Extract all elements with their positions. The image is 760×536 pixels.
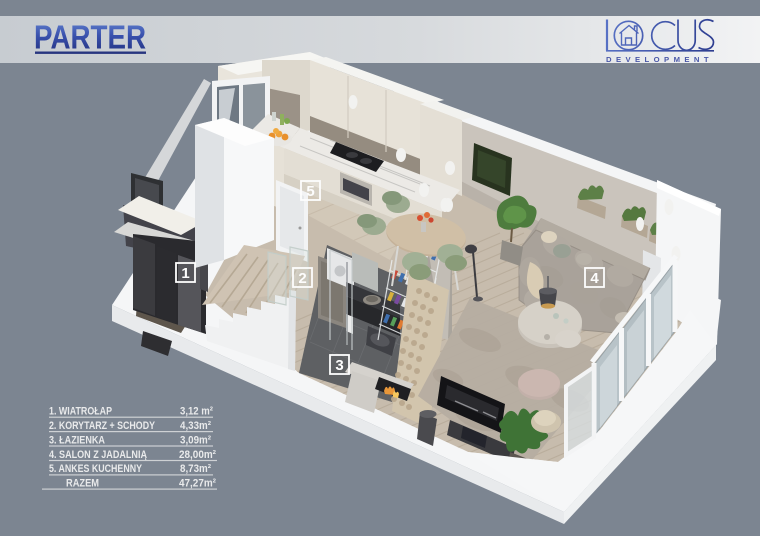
svg-text:DEVELOPMENT: DEVELOPMENT [606, 57, 713, 64]
svg-text:1: 1 [181, 265, 189, 282]
svg-text:3. ŁAZIENKA: 3. ŁAZIENKA [49, 434, 105, 446]
svg-text:4. SALON Z JADALNIĄ: 4. SALON Z JADALNIĄ [49, 449, 147, 461]
svg-text:4: 4 [590, 270, 599, 287]
svg-text:2. KORYTARZ + SCHODY: 2. KORYTARZ + SCHODY [49, 420, 156, 432]
svg-text:5. ANKES KUCHENNY: 5. ANKES KUCHENNY [49, 463, 143, 475]
svg-text:1. WIATROŁAP: 1. WIATROŁAP [49, 406, 112, 418]
svg-text:RAZEM: RAZEM [66, 477, 99, 489]
svg-text:2: 2 [298, 270, 306, 287]
svg-text:8,73m²: 8,73m² [180, 463, 211, 475]
svg-text:4,33m²: 4,33m² [180, 420, 211, 432]
svg-text:3: 3 [335, 357, 343, 374]
svg-text:28,00m²: 28,00m² [179, 449, 216, 461]
svg-text:3,09m²: 3,09m² [180, 434, 211, 446]
svg-text:PARTER: PARTER [34, 19, 146, 56]
svg-text:3,12 m²: 3,12 m² [180, 406, 213, 418]
svg-text:47,27m²: 47,27m² [179, 477, 216, 489]
svg-text:5: 5 [306, 183, 314, 200]
